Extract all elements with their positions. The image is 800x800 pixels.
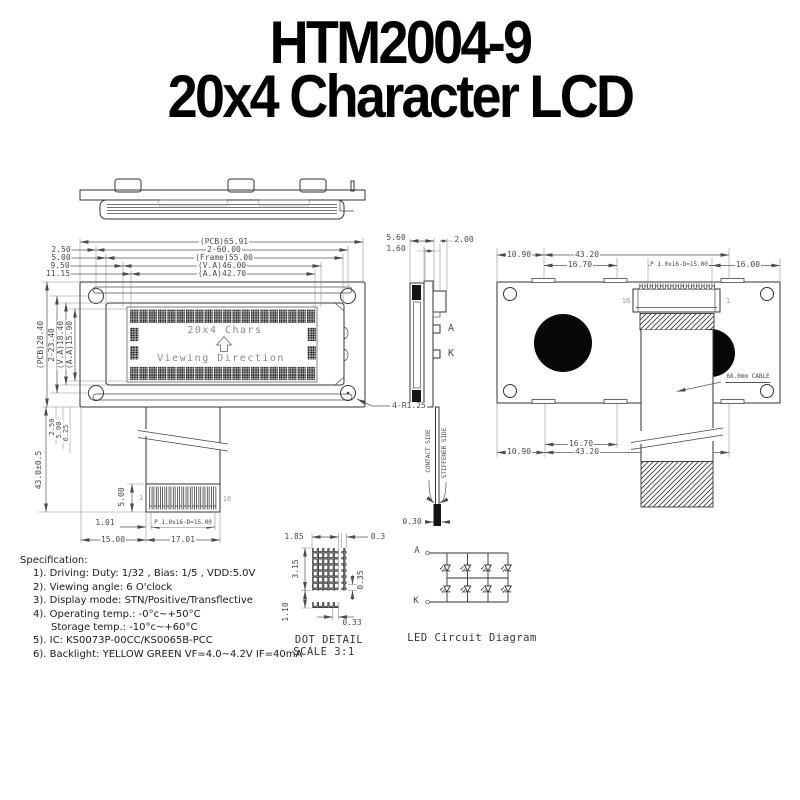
anode-tab <box>433 325 440 333</box>
dim-aa-width: (A.A)42.70 <box>197 270 247 278</box>
dim-rear-top-2: 43.20 <box>574 251 600 259</box>
spec-item: 4). Operating temp.: -0°c~+50°C <box>33 608 302 621</box>
dim-hole-vspan: 2-23.40 <box>48 327 56 363</box>
dim-aa-height: (A.A)15.90 <box>66 320 74 370</box>
front-cable-connector <box>81 399 390 543</box>
dim-pin-pitch: P 1.0x16-D=15.00 <box>153 519 213 527</box>
connector-pins <box>149 487 217 510</box>
dim-side-thickness: 5.60 <box>385 234 406 242</box>
corner-radius-note: 4-R1.25 <box>391 402 427 410</box>
dim-rear-top-1: 10.90 <box>506 251 532 259</box>
dim-rear-top-3: 16.70 <box>567 261 593 269</box>
dim-dot-gap: 0.3 <box>370 533 386 541</box>
lcd-char-row-1 <box>130 310 316 323</box>
dim-dot-w: 0.33 <box>341 619 362 627</box>
dim-dot-width: 1.85 <box>283 533 304 541</box>
lcd-char-block <box>308 346 316 359</box>
dim-offset-4: 11.15 <box>45 270 71 278</box>
datasheet-page: { "title": {"line1": "HTM2004-9", "line2… <box>0 0 800 800</box>
dim-pcb-height: (PCB)28.40 <box>37 320 45 370</box>
dot-matrix-row <box>312 602 339 608</box>
spec-item: Storage temp.: -10°c~+60°C <box>51 621 302 634</box>
connector-teeth <box>638 284 715 290</box>
dot-detail-caption: DOT DETAIL <box>294 636 364 644</box>
rear-pin-1-label: 1 <box>725 297 731 305</box>
specification-block: Specification: 1). Driving: Duty: 1/32 ,… <box>20 554 302 661</box>
dim-cable-left: 15.00 <box>100 536 126 544</box>
anode-label: A <box>447 325 455 333</box>
lcd-char-row-4 <box>130 367 316 380</box>
lcd-char-block <box>308 328 316 341</box>
dim-dot-h: 0.35 <box>357 569 365 590</box>
dim-va-height: (V.A)18.40 <box>57 320 65 370</box>
contact-side-label: CONTACT SIDE <box>425 428 433 473</box>
stiffener-side-label: STIFFENER SIDE <box>441 427 449 480</box>
cable-stiffener-hatch <box>641 462 713 508</box>
dim-rear-bottom-2: 10.90 <box>506 448 532 456</box>
pin-1-label: 1 <box>138 494 144 502</box>
lcd-chars-label: 20x4 Chars <box>186 327 263 335</box>
cable-contact-tip <box>434 504 442 526</box>
dim-rear-top-5: 16.00 <box>735 261 761 269</box>
spec-item: 5). IC: KS0073P-00CC/KS0065B-PCC <box>33 634 302 647</box>
rear-pin-16-label: 16 <box>621 297 631 305</box>
dim-rear-pitch: P 1.0x16-D=15.00 <box>649 261 709 269</box>
led-cathode-label: K <box>412 597 419 605</box>
led-circuit-caption: LED Circuit Diagram <box>406 634 538 642</box>
dim-tail-3: 6.25 <box>62 424 70 443</box>
dot-matrix-grid <box>312 548 339 591</box>
dim-pcb-thickness: 1.60 <box>385 245 406 253</box>
dim-connector-height: 5.00 <box>118 486 126 507</box>
side-view <box>410 238 458 526</box>
lcd-char-block <box>130 346 138 359</box>
dim-cable-tip: 0.30 <box>401 518 422 526</box>
led-circuit-diagram <box>426 551 511 604</box>
spec-heading: Specification: <box>20 554 302 567</box>
spec-item: 2). Viewing angle: 6 O'clock <box>33 581 302 594</box>
dim-connector-offset: 1.01 <box>94 519 115 527</box>
dot-matrix-column <box>341 548 346 591</box>
dim-tab-thickness: 2.00 <box>453 236 474 244</box>
viewing-direction-label: Viewing Direction <box>156 355 286 363</box>
cathode-tab <box>433 350 440 358</box>
led-anode-label: A <box>413 547 420 555</box>
page-subtitle: 20x4 Character LCD <box>40 62 760 131</box>
cathode-label: K <box>447 350 455 358</box>
backlight-hole <box>534 314 592 372</box>
cable-anchor-hatch <box>640 314 714 331</box>
cable-length-note: 68.0mm CABLE <box>725 373 770 383</box>
viewing-direction-arrow-icon <box>217 337 232 352</box>
dim-rear-bottom-3: 43.20 <box>574 448 600 456</box>
dim-cable-width: 17.01 <box>170 536 196 544</box>
dim-overall-height: 43.0±0.5 <box>35 450 43 491</box>
spec-item: 1). Driving: Duty: 1/32 , Bias: 1/5 , VD… <box>33 567 302 580</box>
lcd-char-block <box>130 328 138 341</box>
spec-item: 3). Display mode: STN/Positive/Transflec… <box>33 594 302 607</box>
spec-item: 6). Backlight: YELLOW GREEN VF=4.0~4.2V … <box>33 648 302 661</box>
pin-16-label: 16 <box>222 495 232 503</box>
top-profile-view <box>80 179 365 219</box>
